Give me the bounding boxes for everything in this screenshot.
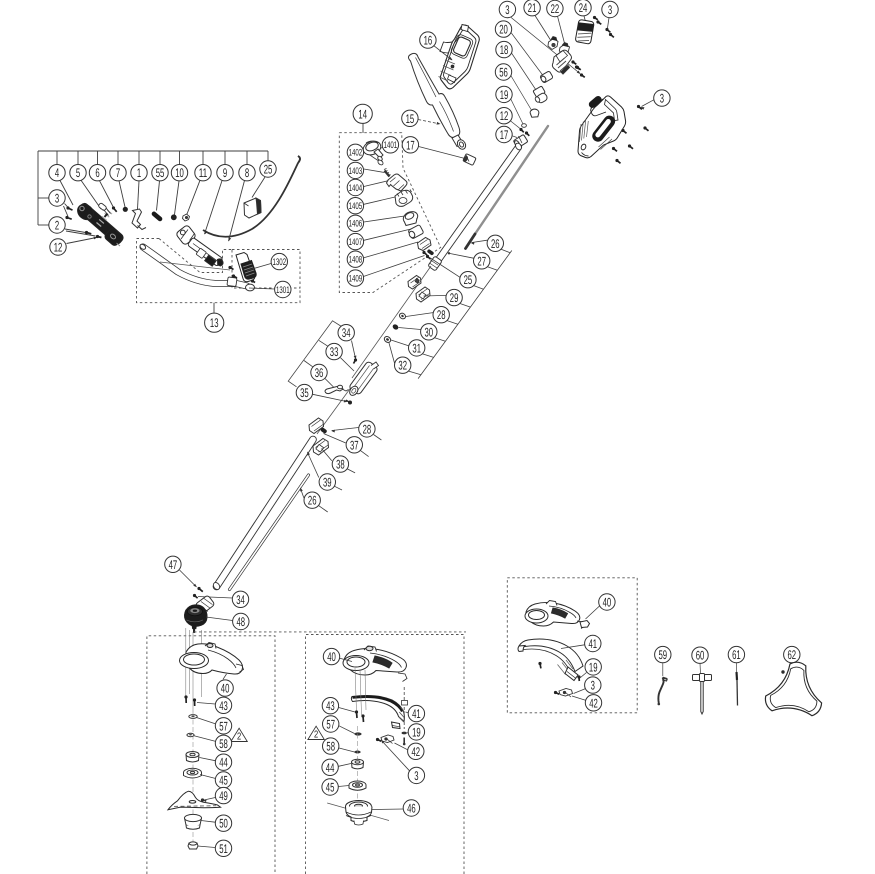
svg-text:3: 3 xyxy=(505,3,509,17)
svg-text:29: 29 xyxy=(450,291,459,305)
svg-text:12: 12 xyxy=(54,241,63,255)
svg-text:1405: 1405 xyxy=(349,201,363,212)
svg-text:59: 59 xyxy=(659,648,668,662)
svg-text:28: 28 xyxy=(363,422,372,436)
svg-text:24: 24 xyxy=(579,1,588,15)
svg-text:1301: 1301 xyxy=(276,285,290,296)
svg-text:50: 50 xyxy=(219,817,228,831)
svg-text:49: 49 xyxy=(219,789,228,803)
svg-text:1302: 1302 xyxy=(273,257,287,268)
svg-text:1404: 1404 xyxy=(349,183,363,194)
svg-text:58: 58 xyxy=(326,740,335,754)
svg-text:45: 45 xyxy=(326,781,335,795)
svg-text:33: 33 xyxy=(330,345,339,359)
svg-text:34: 34 xyxy=(342,326,351,340)
svg-text:26: 26 xyxy=(308,494,317,508)
svg-text:34: 34 xyxy=(236,593,245,607)
svg-text:41: 41 xyxy=(589,637,598,651)
svg-text:36: 36 xyxy=(315,366,324,380)
svg-text:1406: 1406 xyxy=(349,219,363,230)
svg-text:20: 20 xyxy=(499,23,508,37)
svg-text:60: 60 xyxy=(696,649,705,663)
svg-text:38: 38 xyxy=(336,458,345,472)
svg-text:1408: 1408 xyxy=(349,255,363,266)
svg-text:19: 19 xyxy=(500,88,509,102)
svg-text:46: 46 xyxy=(407,802,416,816)
svg-text:43: 43 xyxy=(326,699,335,713)
svg-text:28: 28 xyxy=(437,308,446,322)
svg-text:3: 3 xyxy=(414,769,418,783)
svg-text:12: 12 xyxy=(500,109,509,123)
svg-text:6: 6 xyxy=(95,166,99,180)
svg-text:9: 9 xyxy=(223,166,227,180)
svg-text:2: 2 xyxy=(237,732,242,743)
svg-text:3: 3 xyxy=(608,3,612,17)
svg-text:19: 19 xyxy=(589,660,598,674)
svg-text:21: 21 xyxy=(528,1,537,15)
svg-text:57: 57 xyxy=(326,718,335,732)
svg-text:35: 35 xyxy=(300,386,309,400)
svg-text:57: 57 xyxy=(219,719,228,733)
svg-text:44: 44 xyxy=(326,761,335,775)
svg-text:3: 3 xyxy=(591,679,595,693)
svg-text:40: 40 xyxy=(221,682,230,696)
svg-text:8: 8 xyxy=(245,166,249,180)
svg-text:44: 44 xyxy=(219,756,228,770)
svg-text:14: 14 xyxy=(358,107,367,121)
svg-text:42: 42 xyxy=(412,745,421,759)
svg-text:3: 3 xyxy=(660,92,664,106)
svg-text:25: 25 xyxy=(264,163,273,177)
svg-text:2: 2 xyxy=(55,219,59,233)
svg-text:19: 19 xyxy=(412,725,421,739)
svg-text:4: 4 xyxy=(55,166,59,180)
svg-text:1401: 1401 xyxy=(384,140,398,151)
svg-text:43: 43 xyxy=(219,699,228,713)
svg-text:51: 51 xyxy=(219,842,228,856)
svg-text:32: 32 xyxy=(398,359,407,373)
svg-text:31: 31 xyxy=(412,341,421,355)
svg-text:55: 55 xyxy=(156,166,165,180)
svg-text:7: 7 xyxy=(116,166,120,180)
svg-text:39: 39 xyxy=(323,476,332,490)
svg-text:5: 5 xyxy=(76,166,80,180)
svg-text:17: 17 xyxy=(500,128,509,142)
svg-text:11: 11 xyxy=(199,166,208,180)
svg-text:40: 40 xyxy=(603,596,612,610)
svg-text:27: 27 xyxy=(477,254,486,268)
svg-text:58: 58 xyxy=(219,737,228,751)
svg-text:56: 56 xyxy=(499,66,508,80)
svg-text:30: 30 xyxy=(425,325,434,339)
svg-text:42: 42 xyxy=(589,696,598,710)
svg-text:61: 61 xyxy=(732,648,741,662)
svg-text:37: 37 xyxy=(350,438,359,452)
svg-text:3: 3 xyxy=(55,192,59,206)
svg-text:1403: 1403 xyxy=(349,166,363,177)
svg-text:1409: 1409 xyxy=(349,274,363,285)
svg-text:41: 41 xyxy=(412,707,421,721)
svg-text:18: 18 xyxy=(500,43,509,57)
svg-text:2: 2 xyxy=(314,730,319,741)
svg-text:1: 1 xyxy=(137,166,141,180)
svg-text:16: 16 xyxy=(424,34,433,48)
svg-text:15: 15 xyxy=(406,112,415,126)
svg-text:40: 40 xyxy=(327,650,336,664)
svg-text:45: 45 xyxy=(219,774,228,788)
svg-text:1402: 1402 xyxy=(349,148,363,159)
svg-text:10: 10 xyxy=(175,166,184,180)
svg-text:62: 62 xyxy=(788,648,797,662)
svg-text:22: 22 xyxy=(551,2,560,16)
svg-text:48: 48 xyxy=(237,615,246,629)
svg-text:13: 13 xyxy=(210,316,219,330)
svg-text:17: 17 xyxy=(406,138,415,152)
svg-text:1407: 1407 xyxy=(349,237,363,248)
svg-text:47: 47 xyxy=(169,558,178,572)
svg-text:25: 25 xyxy=(464,273,473,287)
svg-text:26: 26 xyxy=(491,237,500,251)
